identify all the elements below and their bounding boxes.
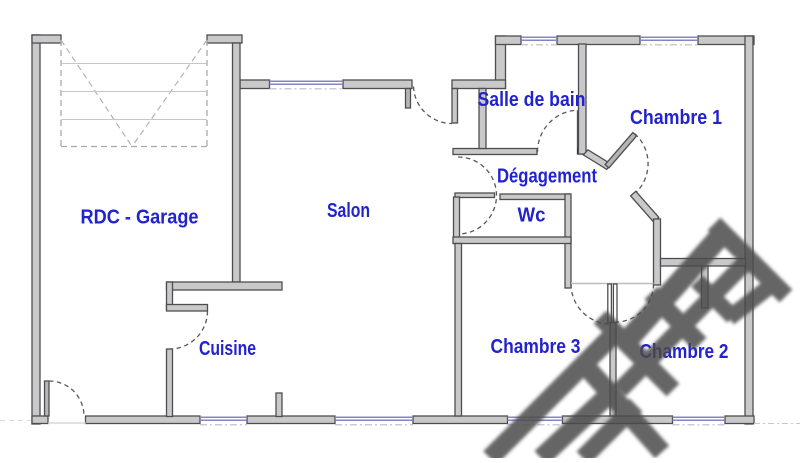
svg-text:Cuisine: Cuisine (199, 338, 256, 360)
svg-text:RDC - Garage: RDC - Garage (81, 207, 199, 229)
svg-text:Dégagement: Dégagement (497, 166, 597, 188)
svg-text:Chambre 1: Chambre 1 (630, 107, 722, 129)
svg-text:Chambre 3: Chambre 3 (491, 336, 581, 358)
svg-text:Wc: Wc (518, 205, 546, 227)
svg-text:Salon: Salon (327, 200, 370, 222)
svg-text:Salle de bain: Salle de bain (478, 89, 586, 111)
